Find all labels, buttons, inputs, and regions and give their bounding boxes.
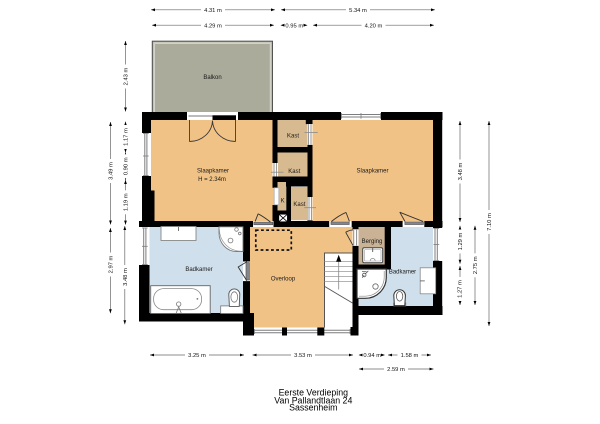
svg-text:Slaapkamer: Slaapkamer bbox=[197, 169, 229, 175]
svg-text:Badkamer: Badkamer bbox=[389, 270, 416, 276]
svg-text:2.97 m: 2.97 m bbox=[108, 255, 114, 273]
svg-text:2.43 m: 2.43 m bbox=[124, 67, 130, 85]
svg-text:Balkon: Balkon bbox=[203, 75, 221, 81]
svg-text:Badkamer: Badkamer bbox=[185, 267, 212, 273]
svg-text:4.31 m: 4.31 m bbox=[204, 8, 222, 14]
svg-text:5.34 m: 5.34 m bbox=[349, 8, 367, 14]
svg-text:1.27 m: 1.27 m bbox=[458, 280, 464, 298]
svg-text:3.49 m: 3.49 m bbox=[109, 162, 115, 180]
svg-text:2.59 m: 2.59 m bbox=[387, 367, 405, 373]
svg-text:1.17 m: 1.17 m bbox=[124, 128, 130, 146]
svg-text:Kast: Kast bbox=[287, 133, 299, 139]
svg-text:0.90 m: 0.90 m bbox=[124, 157, 130, 175]
svg-text:Kast: Kast bbox=[288, 169, 300, 175]
svg-text:K: K bbox=[281, 198, 285, 204]
svg-text:1.58 m: 1.58 m bbox=[401, 353, 419, 359]
svg-text:1.29 m: 1.29 m bbox=[458, 232, 464, 250]
svg-text:4.29 m: 4.29 m bbox=[204, 23, 222, 29]
svg-text:Kast: Kast bbox=[293, 202, 305, 208]
svg-text:Berging: Berging bbox=[362, 239, 383, 245]
svg-text:0.94 m: 0.94 m bbox=[363, 353, 381, 359]
svg-text:Sassenheim: Sassenheim bbox=[289, 403, 337, 413]
svg-text:3.53 m: 3.53 m bbox=[294, 353, 312, 359]
svg-text:4.20 m: 4.20 m bbox=[365, 23, 383, 29]
svg-text:3.25 m: 3.25 m bbox=[188, 353, 206, 359]
svg-text:Slaapkamer: Slaapkamer bbox=[356, 169, 388, 175]
svg-text:3.48 m: 3.48 m bbox=[123, 268, 129, 286]
svg-text:1.19 m: 1.19 m bbox=[124, 193, 130, 211]
svg-text:3.48 m: 3.48 m bbox=[458, 162, 464, 180]
svg-text:Overloop: Overloop bbox=[271, 277, 296, 283]
svg-text:2.75 m: 2.75 m bbox=[473, 256, 479, 274]
svg-text:7.10 m: 7.10 m bbox=[487, 213, 493, 231]
svg-text:0.95 m: 0.95 m bbox=[285, 23, 303, 29]
svg-text:H = 2.34m: H = 2.34m bbox=[198, 177, 226, 183]
